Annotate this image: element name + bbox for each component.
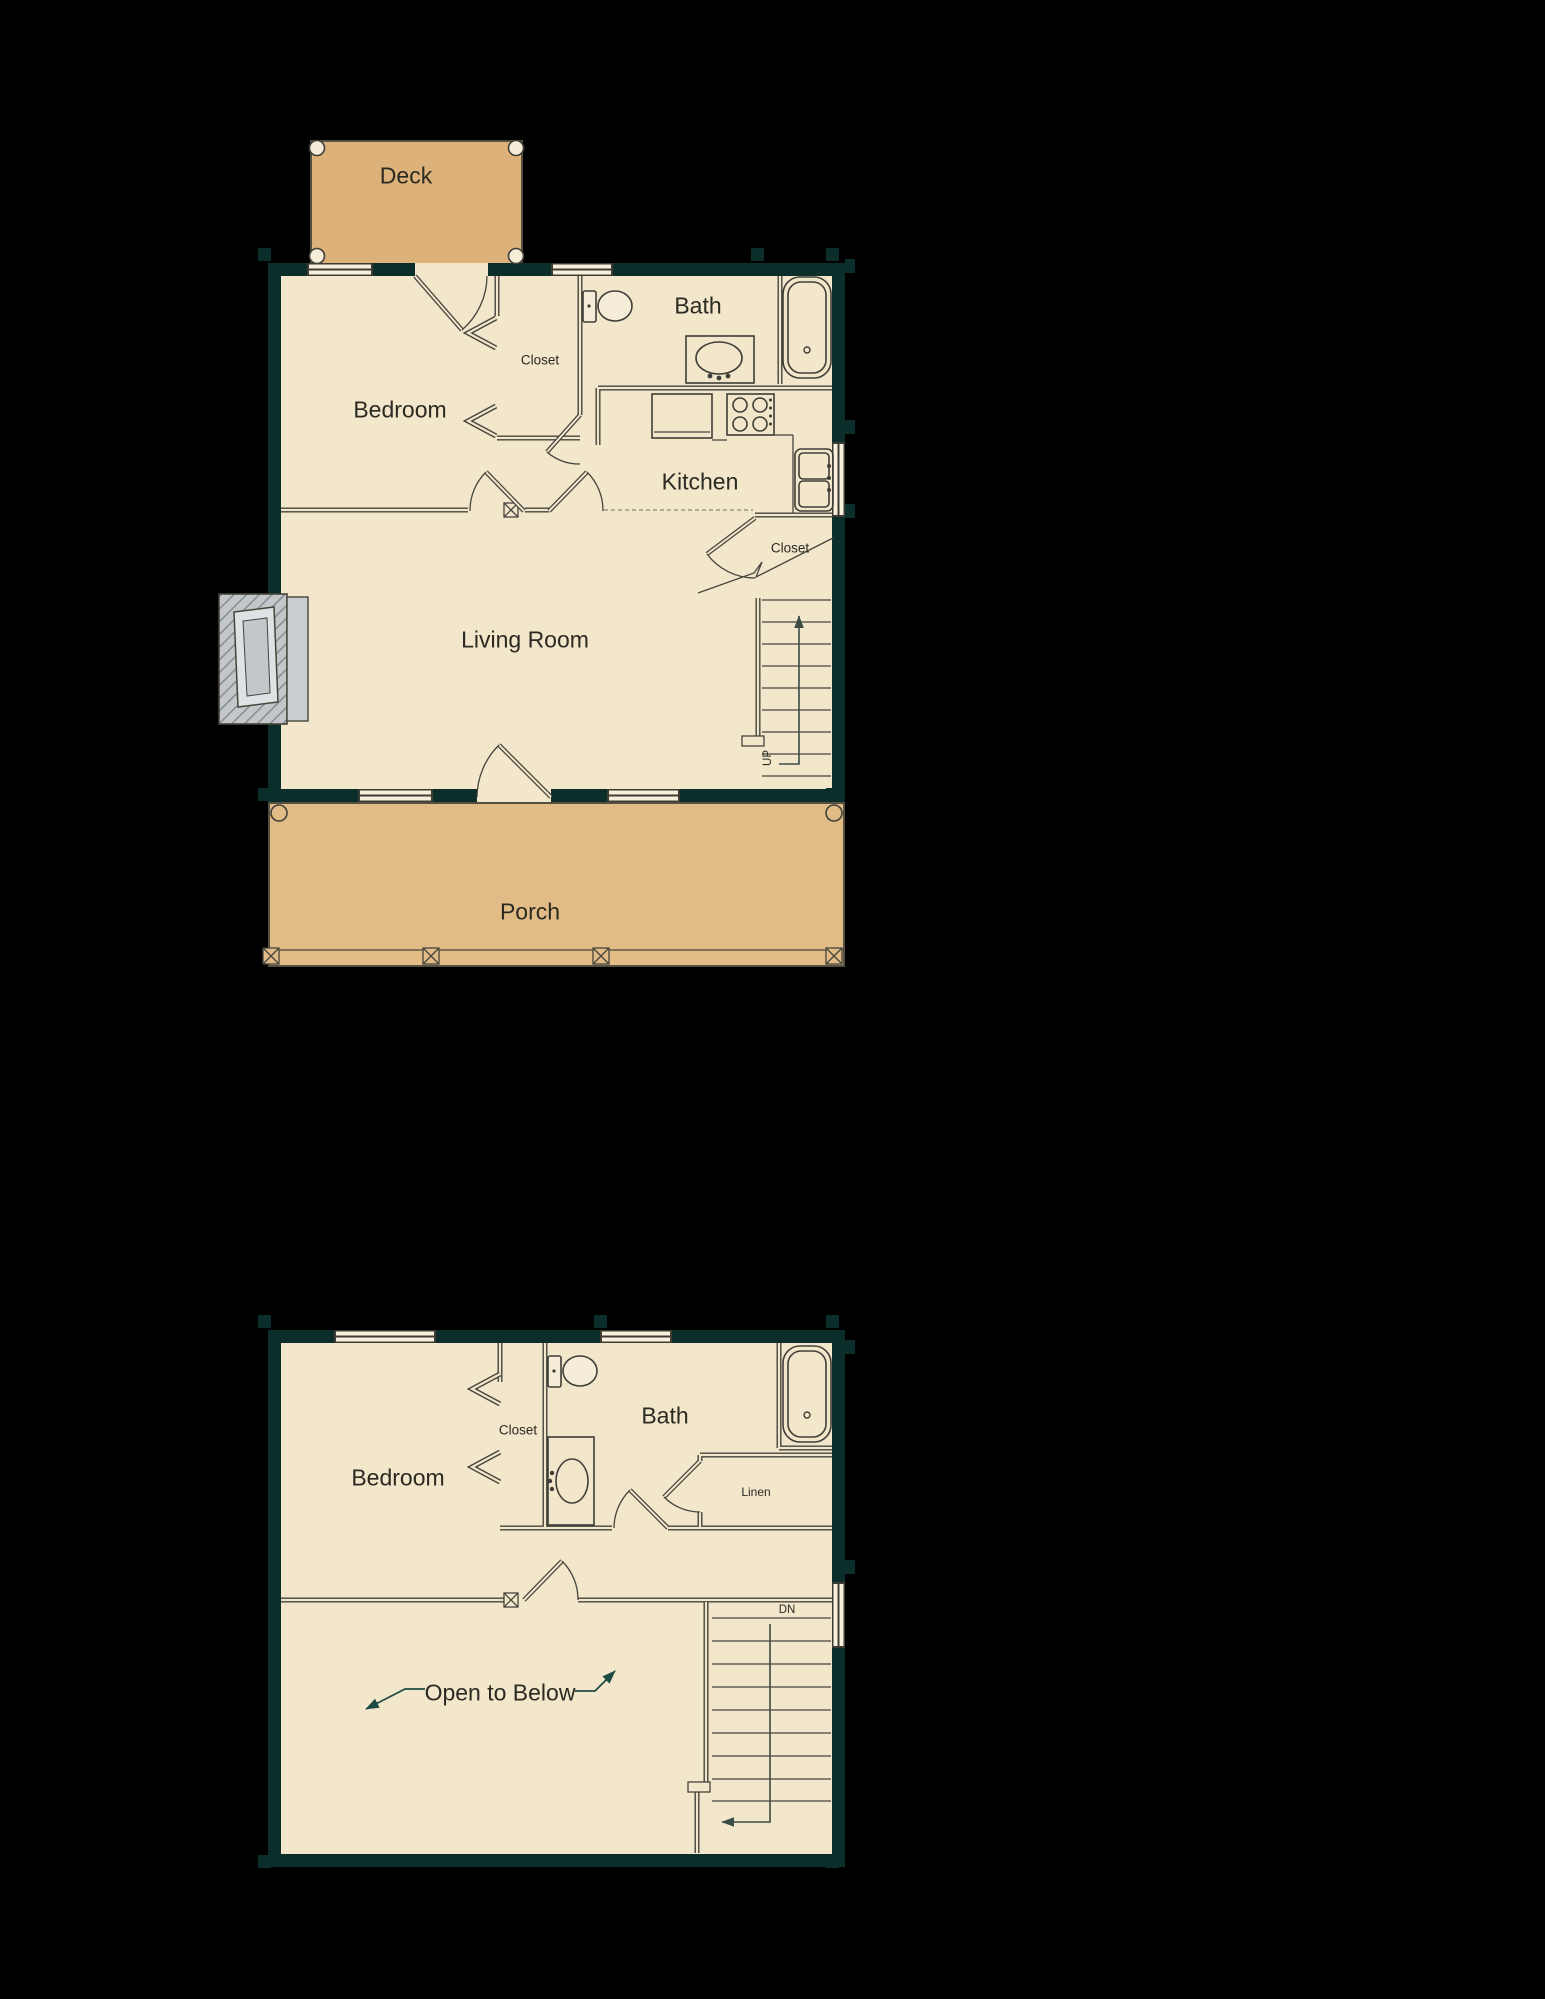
- room-label-bedroom: Bedroom: [351, 1465, 444, 1492]
- second-floor-drawing: [0, 0, 1545, 1999]
- vanity-sink-icon: [548, 1437, 594, 1525]
- stairs-down: [688, 1618, 831, 1822]
- door-swing: [664, 1461, 700, 1512]
- room-label-bath: Bath: [641, 1403, 688, 1430]
- post-symbol-icon: [504, 1593, 518, 1607]
- bathtub-icon: [783, 1346, 831, 1442]
- stairs-down-label: DN: [779, 1604, 796, 1616]
- railing-cap: [688, 1782, 710, 1792]
- room-label-open-to-below: Open to Below: [425, 1680, 576, 1707]
- down-arrow: [722, 1624, 770, 1822]
- closet-rod-icon: [472, 1374, 500, 1482]
- door-swing: [524, 1561, 578, 1600]
- floor-plan-canvas: Deck Bedroom Closet Bath Kitchen Living …: [0, 0, 1545, 1999]
- room-label-linen: Linen: [741, 1485, 770, 1499]
- room-label-closet: Closet: [499, 1423, 537, 1438]
- door-swing: [614, 1490, 668, 1528]
- toilet-icon: [548, 1356, 597, 1387]
- interior-walls: [281, 1343, 832, 1853]
